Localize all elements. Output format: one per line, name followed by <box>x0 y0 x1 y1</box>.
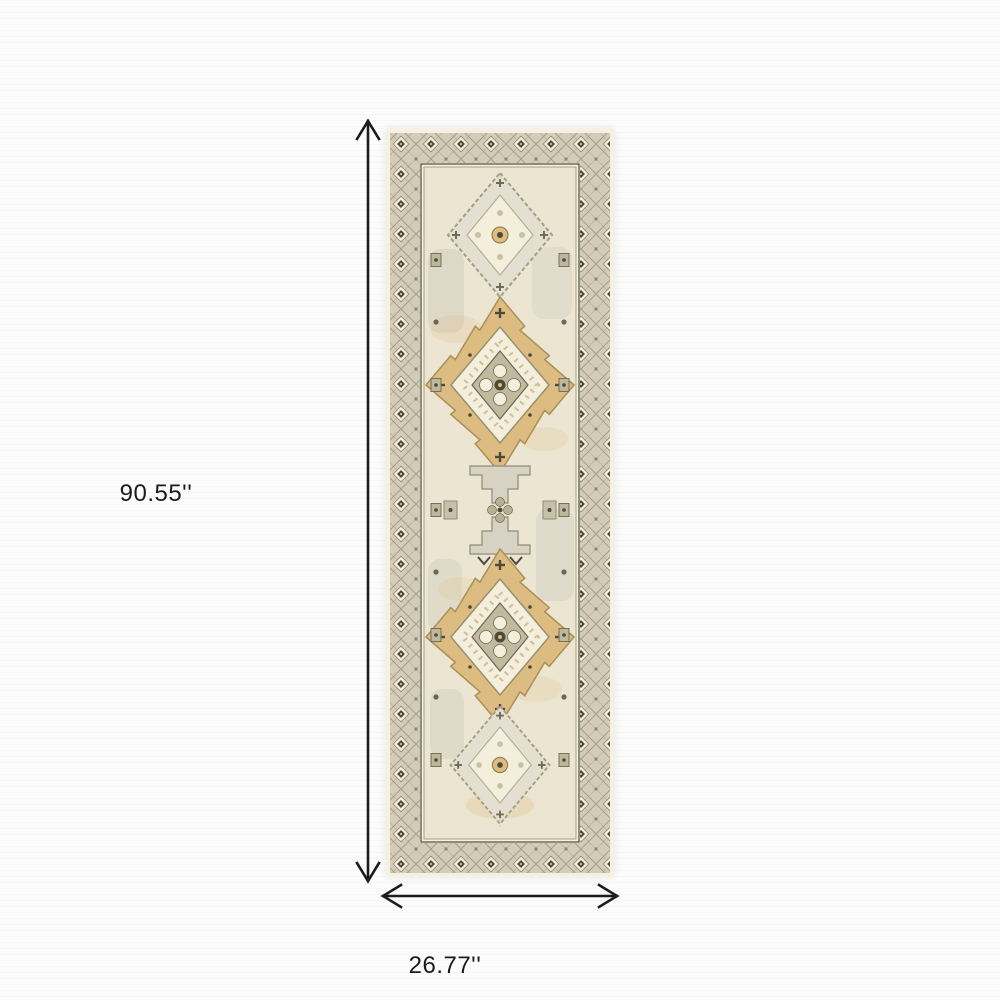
width-dimension-label: 26.77'' <box>385 952 505 980</box>
dimension-diagram: 90.55'' 26.77'' <box>0 0 1000 1000</box>
rug-image <box>386 129 614 877</box>
width-arrow-icon <box>374 879 626 913</box>
height-arrow-icon <box>351 110 385 890</box>
height-dimension-label: 90.55'' <box>98 480 214 508</box>
rug-illustration <box>386 129 614 877</box>
